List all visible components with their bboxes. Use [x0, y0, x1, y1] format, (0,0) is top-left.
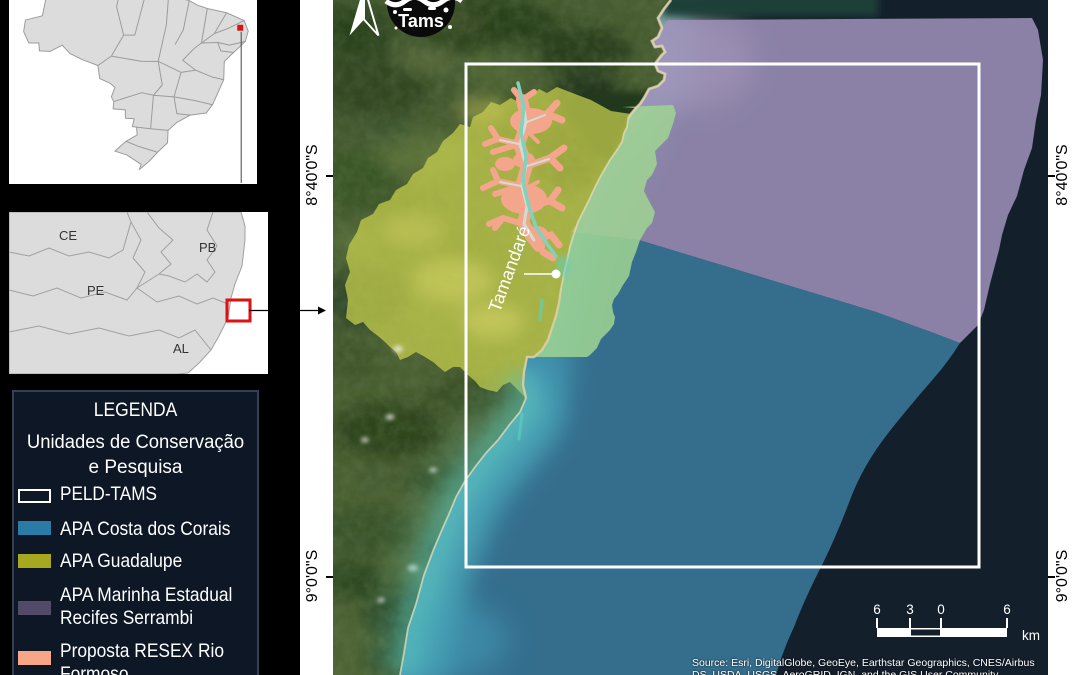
svg-text:Tams: Tams	[398, 11, 444, 31]
svg-text:6: 6	[873, 602, 881, 617]
svg-text:AL: AL	[173, 341, 189, 356]
svg-text:0: 0	[937, 602, 945, 617]
svg-text:3: 3	[906, 602, 914, 617]
svg-text:km: km	[1022, 628, 1040, 643]
svg-text:6: 6	[1003, 602, 1011, 617]
svg-text:DS, USDA, USGS, AeroGRID, IGN,: DS, USDA, USGS, AeroGRID, IGN, and the G…	[692, 669, 999, 675]
svg-text:Source: Esri, DigitalGlobe, Ge: Source: Esri, DigitalGlobe, GeoEye, Eart…	[692, 657, 1035, 669]
